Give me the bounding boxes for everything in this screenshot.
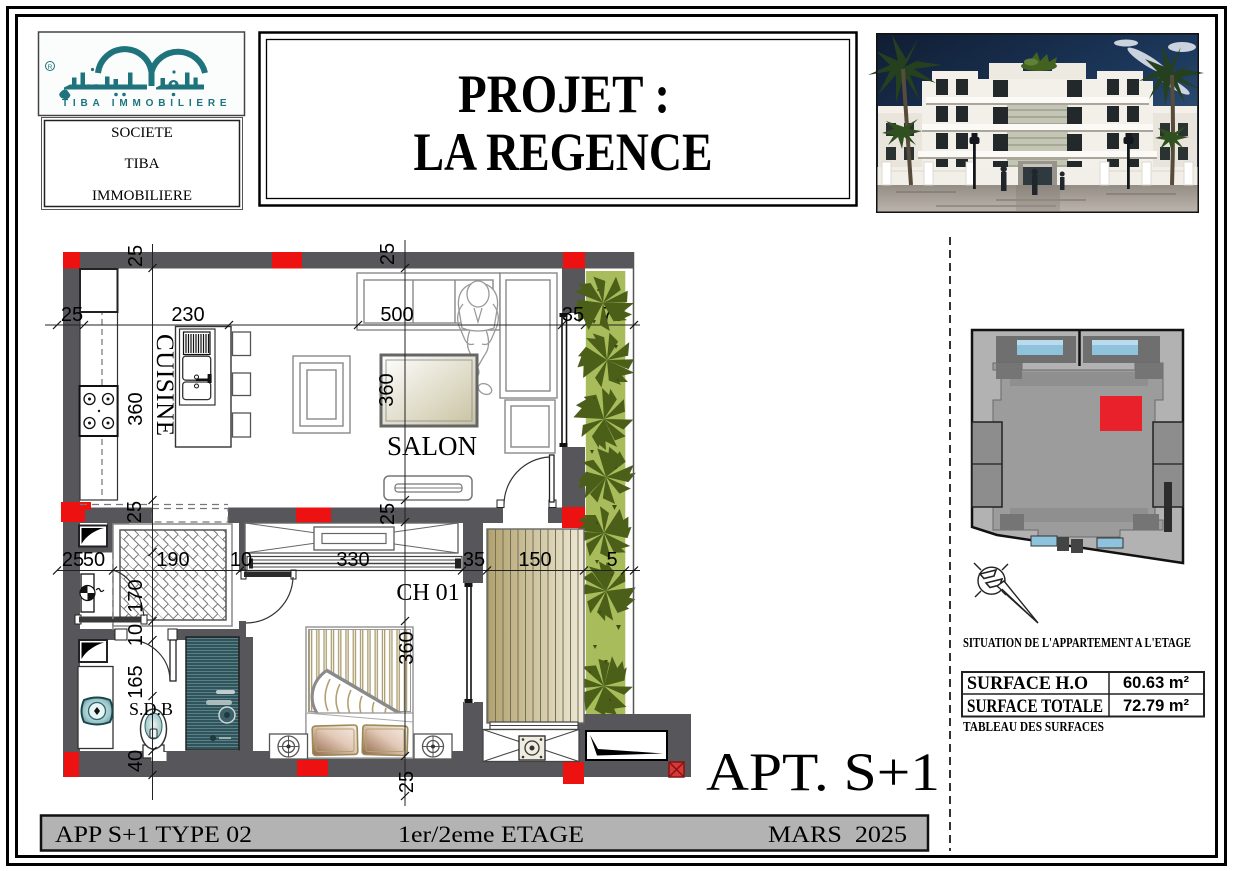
svg-text:MARS 2025: MARS 2025: [768, 822, 907, 847]
svg-text:PROJET :: PROJET :: [458, 64, 670, 124]
svg-text:360: 360: [376, 373, 398, 406]
svg-text:SURFACE H.O: SURFACE H.O: [967, 673, 1088, 694]
svg-text:40: 40: [125, 750, 147, 772]
svg-text:60.63 m²: 60.63 m²: [1123, 674, 1190, 692]
svg-text:10: 10: [230, 549, 252, 571]
svg-text:72.79 m²: 72.79 m²: [1123, 697, 1190, 715]
svg-text:165: 165: [125, 665, 147, 698]
svg-text:IMMOBILIERE: IMMOBILIERE: [92, 188, 192, 204]
svg-text:1er/2eme ETAGE: 1er/2eme ETAGE: [398, 822, 584, 847]
svg-text:25: 25: [61, 304, 83, 326]
svg-text:5: 5: [606, 549, 617, 571]
svg-text:10: 10: [125, 624, 147, 646]
svg-text:360: 360: [396, 631, 418, 664]
svg-text:R: R: [48, 64, 53, 71]
svg-text:S.D.B: S.D.B: [129, 699, 173, 719]
svg-text:360: 360: [125, 392, 147, 425]
svg-text:35: 35: [562, 304, 584, 326]
svg-text:CH 01: CH 01: [396, 580, 459, 606]
svg-text:50: 50: [83, 549, 105, 571]
svg-text:APT. S+1: APT. S+1: [706, 742, 940, 802]
svg-text:25: 25: [377, 503, 399, 525]
svg-text:150: 150: [518, 549, 551, 571]
svg-text:330: 330: [336, 549, 369, 571]
svg-text:25: 25: [396, 771, 418, 793]
svg-text:25: 25: [62, 549, 84, 571]
svg-text:LA REGENCE: LA REGENCE: [414, 122, 713, 182]
svg-text:SURFACE TOTALE: SURFACE TOTALE: [967, 696, 1103, 717]
svg-text:TABLEAU DES SURFACES: TABLEAU DES SURFACES: [963, 720, 1104, 735]
svg-text:SOCIETE: SOCIETE: [111, 125, 173, 141]
svg-text:230: 230: [171, 304, 204, 326]
svg-text:190: 190: [156, 549, 189, 571]
svg-text:SITUATION DE L'APPARTEMENT A L: SITUATION DE L'APPARTEMENT A L'ETAGE: [963, 636, 1191, 651]
svg-text:TIBA IMMOBILIERE: TIBA IMMOBILIERE: [62, 98, 230, 109]
svg-text:25: 25: [125, 245, 147, 267]
svg-text:35: 35: [463, 549, 485, 571]
svg-text:CUISINE: CUISINE: [151, 334, 178, 436]
svg-text:170: 170: [125, 579, 147, 612]
svg-text:25: 25: [377, 243, 399, 265]
svg-text:SALON: SALON: [387, 431, 477, 461]
svg-text:500: 500: [380, 304, 413, 326]
svg-text:APP S+1 TYPE 02: APP S+1 TYPE 02: [55, 822, 252, 847]
svg-text:TIBA: TIBA: [125, 156, 160, 172]
svg-text:25: 25: [124, 501, 146, 523]
